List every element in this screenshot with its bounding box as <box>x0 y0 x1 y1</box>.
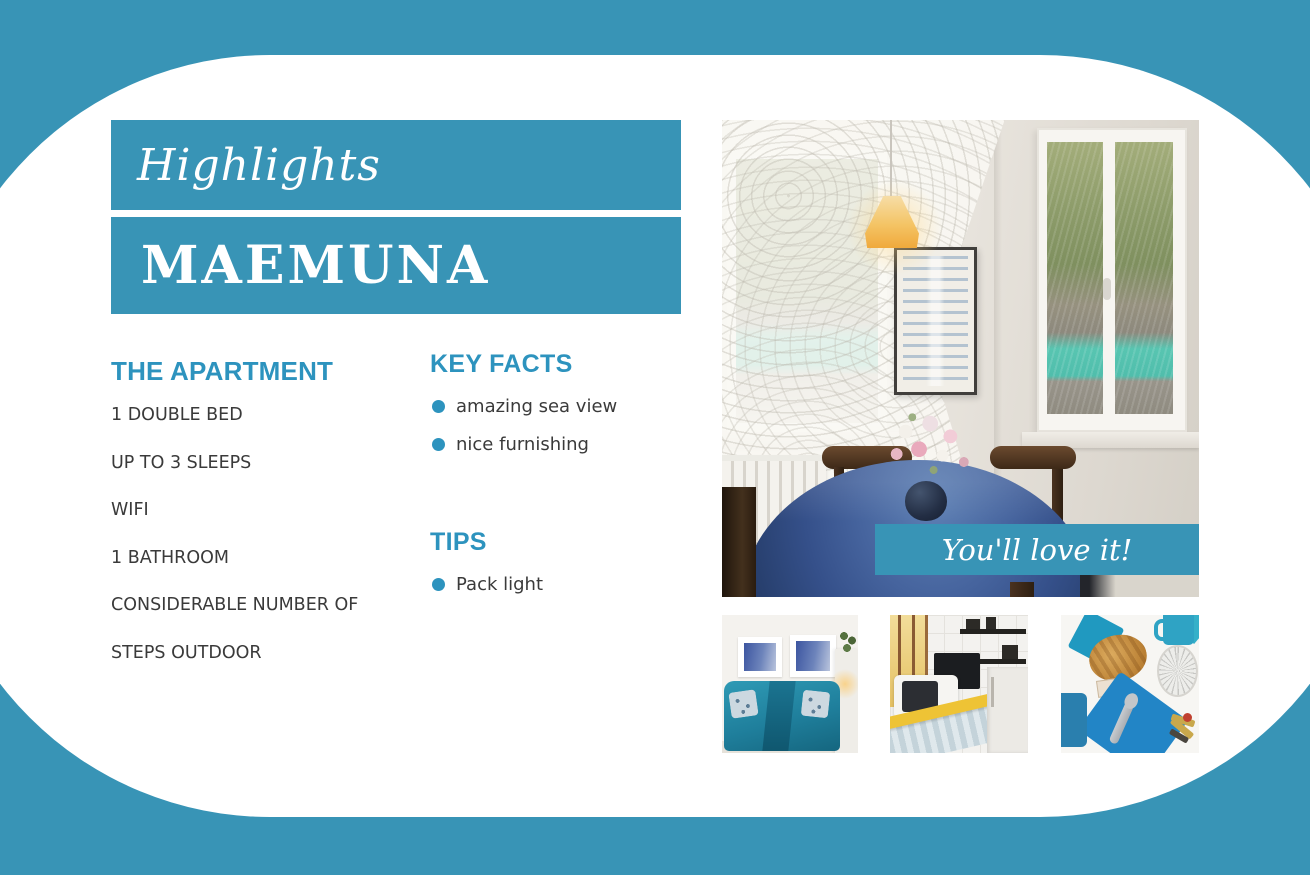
wall-shelf <box>960 629 1026 634</box>
thumbnail-breakfast-table-photo <box>1061 615 1199 753</box>
apartment-section: THE APARTMENT 1 DOUBLE BEDUP TO 3 SLEEPS… <box>111 356 379 677</box>
apartment-heading: THE APARTMENT <box>111 356 379 387</box>
tips-list: Pack light <box>430 565 690 603</box>
fridge-handle <box>991 677 994 707</box>
shelf-item <box>986 617 996 629</box>
right-window-pane-left <box>1047 142 1103 414</box>
bullet-dot-icon <box>432 438 445 451</box>
wall-art-frame <box>738 637 782 677</box>
wall-art <box>744 643 776 671</box>
ribbed-glass <box>1157 645 1198 697</box>
bullet-label: Pack light <box>456 574 543 595</box>
flower-bouquet <box>872 406 984 486</box>
chair-back-right <box>990 446 1076 469</box>
mug-handle <box>1154 619 1170 641</box>
property-name: MAEMUNA <box>141 235 490 296</box>
highlights-title: Highlights <box>137 140 381 191</box>
flower-vase <box>905 481 947 521</box>
bullet-label: nice furnishing <box>456 434 589 455</box>
blue-mug <box>1061 693 1087 747</box>
apartment-list: 1 DOUBLE BEDUP TO 3 SLEEPSWIFI1 BATHROOM… <box>111 392 369 677</box>
apartment-item: CONSIDERABLE NUMBER OF STEPS OUTDOOR <box>111 582 369 677</box>
fridge <box>987 667 1028 753</box>
property-name-banner: MAEMUNA <box>111 217 681 314</box>
caption-banner: You'll love it! <box>875 524 1199 575</box>
apartment-item: 1 DOUBLE BED <box>111 392 369 440</box>
tips-heading: TIPS <box>430 528 690 557</box>
shelf-item <box>966 619 980 629</box>
key-facts-section: KEY FACTS amazing sea viewnice furnishin… <box>430 350 690 463</box>
key-fob <box>1183 713 1192 722</box>
apartment-item: WIFI <box>111 487 369 535</box>
keys <box>1167 711 1199 753</box>
right-window <box>1037 128 1187 432</box>
caption-text: You'll love it! <box>942 533 1133 567</box>
bullet-dot-icon <box>432 578 445 591</box>
thumbnail-kitchen-photo <box>890 615 1028 753</box>
wall-art <box>796 641 830 671</box>
key-facts-heading: KEY FACTS <box>430 350 690 379</box>
flyer-canvas: Highlights MAEMUNA THE APARTMENT 1 DOUBL… <box>0 0 1310 875</box>
plant <box>838 627 858 657</box>
key-facts-list: amazing sea viewnice furnishing <box>430 387 690 463</box>
tips-section: TIPS Pack light <box>430 528 690 603</box>
shelf-item <box>1002 645 1018 659</box>
bullet-item: nice furnishing <box>430 425 690 463</box>
thumbnail-living-room-photo <box>722 615 858 753</box>
pillow <box>801 690 831 719</box>
bullet-item: amazing sea view <box>430 387 690 425</box>
apartment-item: 1 BATHROOM <box>111 535 369 583</box>
bullet-dot-icon <box>432 400 445 413</box>
foreground-chair <box>722 487 756 597</box>
teal-mug <box>1163 615 1194 645</box>
bullet-item: Pack light <box>430 565 690 603</box>
main-photo-dining-room: You'll love it! <box>722 120 1199 597</box>
highlights-banner: Highlights <box>111 120 681 210</box>
chair-leg-front <box>1010 582 1034 597</box>
window-handle <box>1103 278 1111 300</box>
apartment-item: UP TO 3 SLEEPS <box>111 440 369 488</box>
right-window-pane-right <box>1115 142 1173 414</box>
bullet-label: amazing sea view <box>456 396 617 417</box>
pillow <box>728 689 758 719</box>
